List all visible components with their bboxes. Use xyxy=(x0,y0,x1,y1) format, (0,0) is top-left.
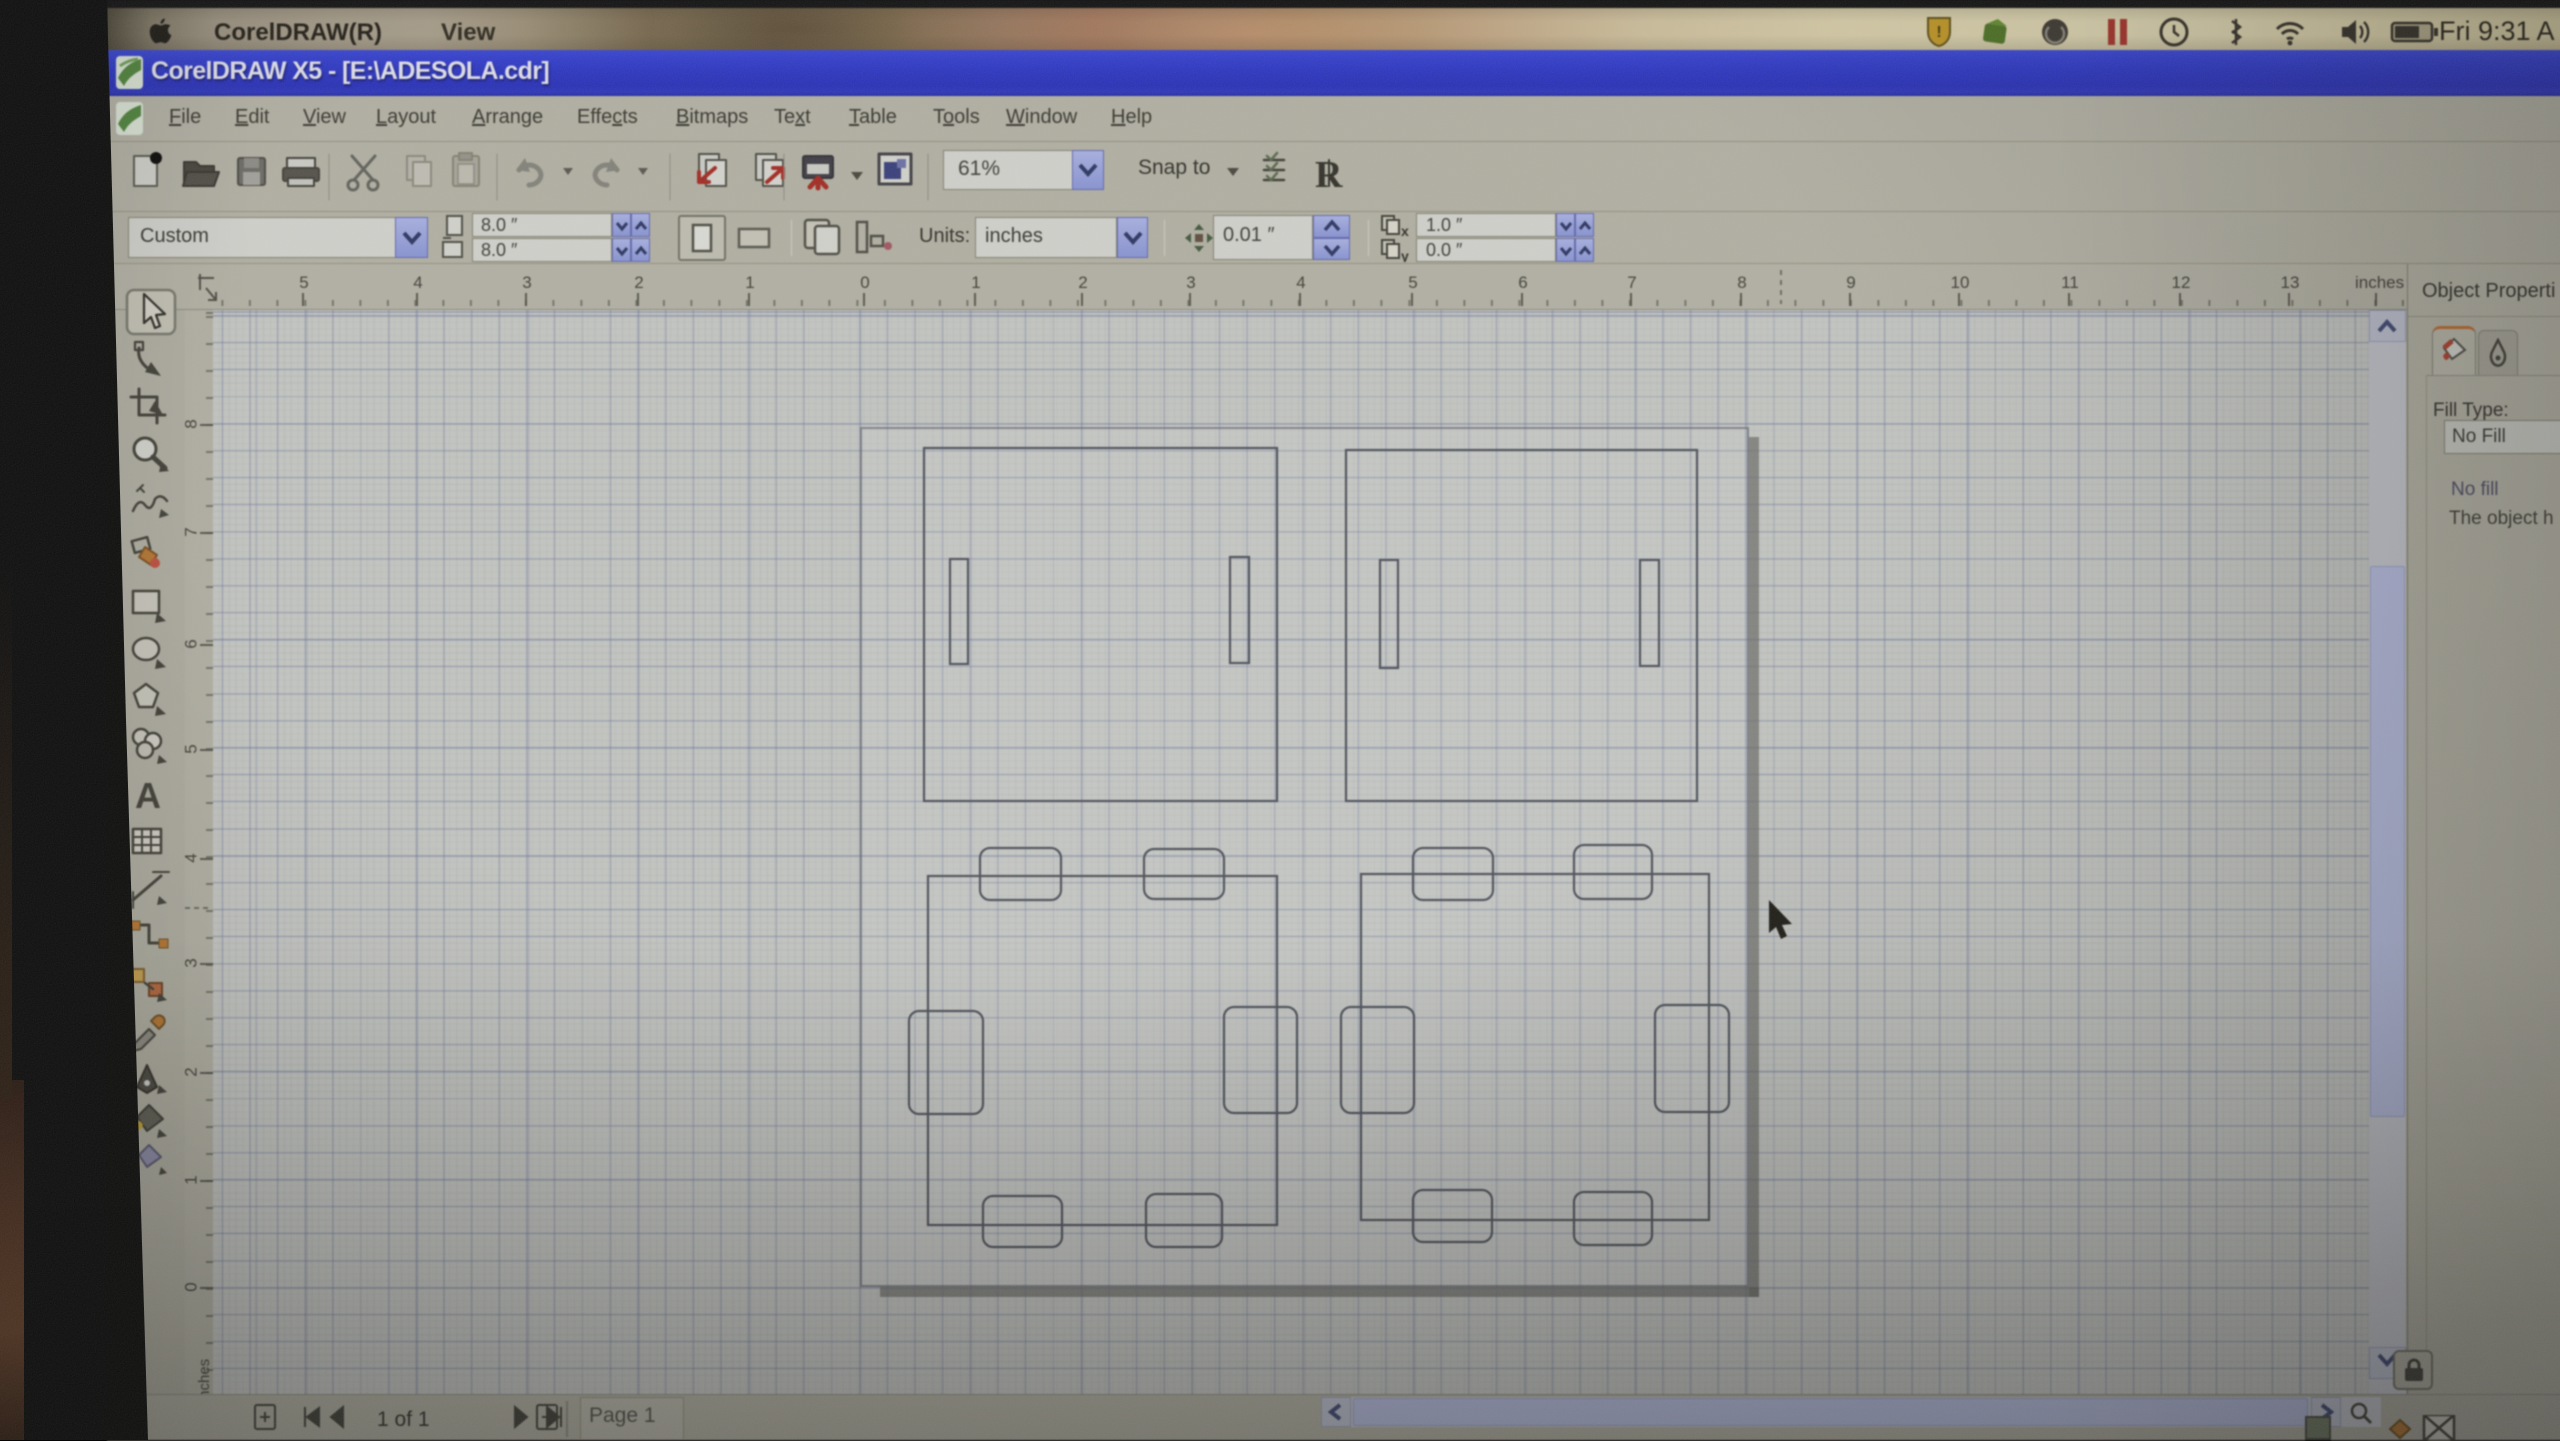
svg-text:1 of 1: 1 of 1 xyxy=(377,1408,430,1431)
svg-text:A: A xyxy=(135,775,161,816)
svg-text:x: x xyxy=(1401,223,1409,239)
svg-text:y: y xyxy=(1401,248,1409,262)
svg-text:!: ! xyxy=(1936,24,1941,41)
